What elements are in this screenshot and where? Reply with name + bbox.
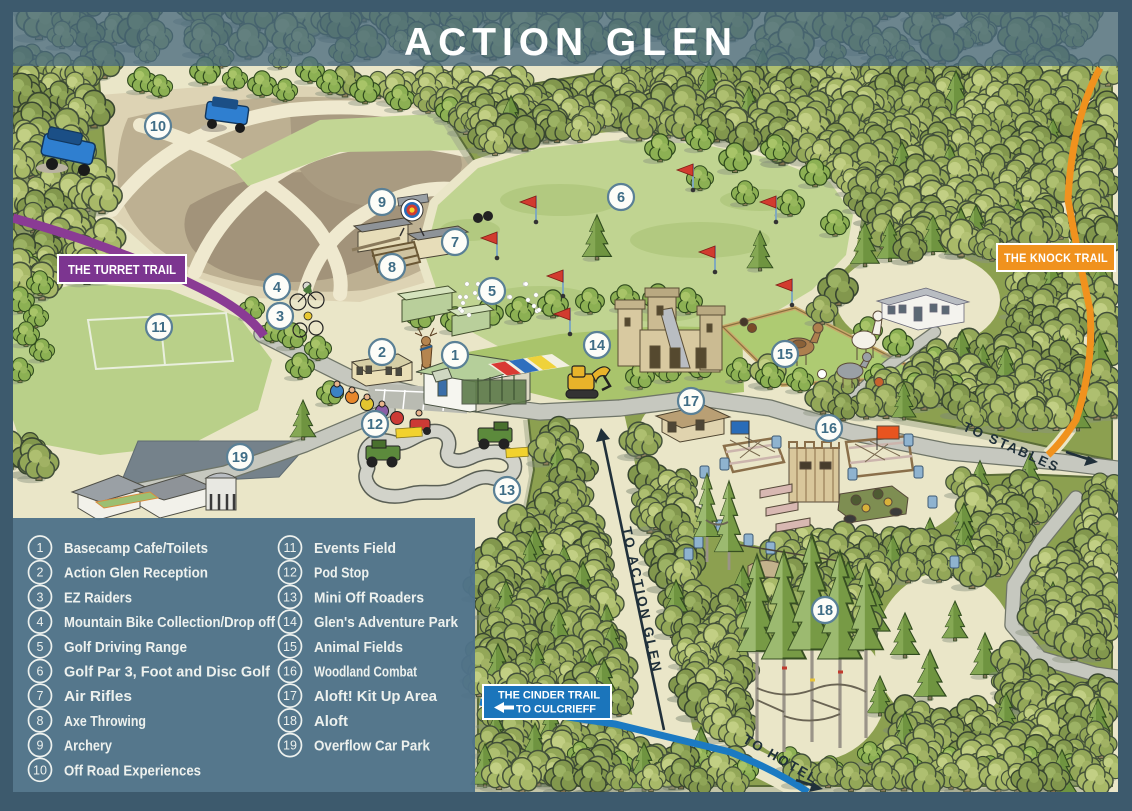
- svg-text:6: 6: [37, 665, 44, 679]
- svg-text:Aloft: Aloft: [314, 713, 348, 730]
- svg-text:Overflow Car Park: Overflow Car Park: [314, 738, 431, 755]
- svg-text:15: 15: [283, 640, 297, 654]
- svg-text:12: 12: [283, 566, 297, 580]
- svg-text:6: 6: [617, 190, 625, 206]
- svg-text:Mini Off Roaders: Mini Off Roaders: [314, 589, 424, 606]
- svg-text:13: 13: [499, 483, 515, 499]
- svg-text:Aloft! Kit Up Area: Aloft! Kit Up Area: [314, 688, 438, 705]
- svg-text:14: 14: [589, 338, 605, 354]
- svg-text:14: 14: [283, 615, 297, 629]
- svg-text:5: 5: [488, 284, 496, 300]
- svg-text:18: 18: [817, 603, 833, 619]
- svg-text:THE CINDER TRAIL: THE CINDER TRAIL: [498, 690, 600, 702]
- svg-text:1: 1: [451, 348, 459, 364]
- svg-text:12: 12: [367, 417, 383, 433]
- svg-text:Axe Throwing: Axe Throwing: [64, 713, 146, 730]
- svg-text:10: 10: [33, 763, 47, 777]
- svg-text:13: 13: [283, 590, 297, 604]
- svg-text:5: 5: [37, 640, 44, 654]
- svg-text:15: 15: [777, 347, 793, 363]
- svg-text:ACTION GLEN: ACTION GLEN: [404, 21, 738, 64]
- svg-text:7: 7: [37, 689, 44, 703]
- svg-text:4: 4: [37, 615, 44, 629]
- svg-text:2: 2: [37, 566, 44, 580]
- svg-text:Action Glen Reception: Action Glen Reception: [64, 565, 208, 582]
- svg-text:Golf Par 3, Foot and Disc Golf: Golf Par 3, Foot and Disc Golf: [64, 664, 271, 681]
- svg-text:EZ Raiders: EZ Raiders: [64, 589, 132, 606]
- svg-text:Pod Stop: Pod Stop: [314, 565, 369, 582]
- svg-text:10: 10: [150, 119, 166, 135]
- svg-text:11: 11: [151, 320, 166, 336]
- svg-text:Animal Fields: Animal Fields: [314, 639, 403, 656]
- svg-text:3: 3: [37, 590, 44, 604]
- svg-text:Glen's Adventure Park: Glen's Adventure Park: [314, 614, 459, 631]
- svg-text:19: 19: [283, 739, 297, 753]
- svg-text:8: 8: [388, 260, 396, 276]
- svg-text:Golf Driving Range: Golf Driving Range: [64, 639, 187, 656]
- svg-text:17: 17: [683, 394, 699, 410]
- svg-text:17: 17: [283, 689, 297, 703]
- svg-text:Archery: Archery: [64, 738, 113, 755]
- svg-text:Events Field: Events Field: [314, 540, 396, 557]
- svg-text:8: 8: [37, 714, 44, 728]
- svg-text:7: 7: [451, 235, 459, 251]
- svg-text:Off Road Experiences: Off Road Experiences: [64, 762, 201, 779]
- svg-text:Mountain Bike Collection/Drop: Mountain Bike Collection/Drop off: [64, 614, 276, 631]
- svg-text:TO CULCRIEFF: TO CULCRIEFF: [516, 704, 596, 716]
- svg-text:11: 11: [284, 541, 297, 555]
- svg-text:THE KNOCK TRAIL: THE KNOCK TRAIL: [1004, 251, 1108, 265]
- svg-text:16: 16: [283, 665, 297, 679]
- svg-text:2: 2: [378, 345, 386, 361]
- svg-text:19: 19: [232, 450, 248, 466]
- svg-text:9: 9: [37, 739, 44, 753]
- svg-text:18: 18: [283, 714, 297, 728]
- svg-text:THE TURRET TRAIL: THE TURRET TRAIL: [68, 263, 176, 277]
- svg-text:9: 9: [378, 195, 386, 211]
- svg-text:Woodland Combat: Woodland Combat: [314, 664, 417, 681]
- svg-text:3: 3: [276, 309, 284, 325]
- svg-text:1: 1: [37, 541, 44, 555]
- svg-text:Air Rifles: Air Rifles: [64, 688, 132, 705]
- svg-text:4: 4: [273, 280, 281, 296]
- svg-text:Basecamp Cafe/Toilets: Basecamp Cafe/Toilets: [64, 540, 208, 557]
- svg-text:16: 16: [821, 421, 837, 437]
